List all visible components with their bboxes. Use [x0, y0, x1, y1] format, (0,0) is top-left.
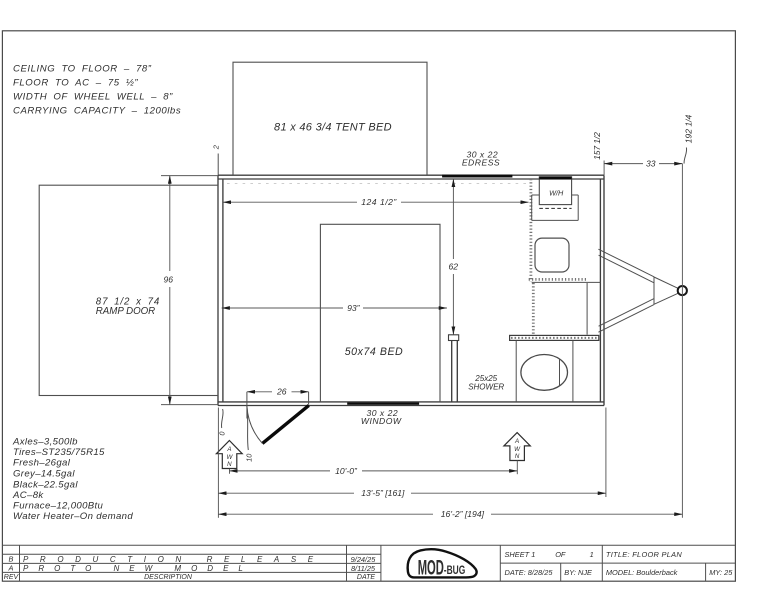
svg-text:93”: 93”	[347, 303, 361, 313]
svg-text:CEILING TO FLOOR – 78”: CEILING TO FLOOR – 78”	[13, 63, 152, 74]
svg-text:PRODUCTION RELEASE: PRODUCTION RELEASE	[23, 555, 325, 564]
svg-text:192 1/4: 192 1/4	[684, 114, 694, 143]
svg-text:2: 2	[212, 145, 221, 150]
svg-text:B: B	[9, 555, 14, 564]
svg-text:N: N	[227, 461, 232, 468]
svg-text:81 x 46 3/4 TENT BED: 81 x 46 3/4 TENT BED	[274, 122, 392, 134]
svg-text:W/H: W/H	[549, 188, 564, 197]
svg-text:MY: 25: MY: 25	[709, 568, 733, 577]
svg-text:RAMP DOOR: RAMP DOOR	[96, 306, 155, 317]
svg-text:WIDTH OF WHEEL WELL – 8”: WIDTH OF WHEEL WELL – 8”	[13, 92, 173, 103]
svg-text:TITLE: FLOOR PLAN: TITLE: FLOOR PLAN	[606, 550, 683, 559]
svg-text:OF: OF	[555, 550, 566, 559]
svg-text:REV: REV	[4, 574, 20, 581]
svg-text:Water Heater–On demand: Water Heater–On demand	[13, 511, 133, 522]
svg-text:N: N	[515, 453, 520, 460]
svg-text:A: A	[514, 438, 519, 445]
svg-text:1: 1	[590, 550, 594, 559]
svg-text:SHEET 1: SHEET 1	[505, 550, 536, 559]
svg-text:MODEL: Boulderback: MODEL: Boulderback	[606, 568, 678, 577]
svg-text:AC–8k: AC–8k	[12, 490, 44, 501]
svg-text:-BUG: -BUG	[444, 565, 466, 577]
svg-text:PROTO NEW MODEL: PROTO NEW MODEL	[23, 564, 253, 573]
svg-text:EDRESS: EDRESS	[462, 158, 500, 168]
svg-text:8/11/25: 8/11/25	[351, 564, 376, 573]
svg-text:DATE: 8/28/25: DATE: 8/28/25	[505, 568, 554, 577]
svg-text:157 1/2: 157 1/2	[592, 132, 602, 160]
svg-text:50x74 BED: 50x74 BED	[345, 346, 404, 358]
svg-text:10: 10	[244, 453, 253, 462]
svg-text:10'-0”: 10'-0”	[335, 466, 358, 476]
svg-text:Grey–14.5gal: Grey–14.5gal	[13, 468, 75, 479]
svg-text:Furnace–12,000Btu: Furnace–12,000Btu	[13, 500, 104, 511]
svg-text:BY: NJE: BY: NJE	[564, 568, 592, 577]
svg-text:33: 33	[646, 159, 656, 169]
svg-text:Tires–ST235/75R15: Tires–ST235/75R15	[13, 447, 105, 458]
svg-text:Fresh–26gal: Fresh–26gal	[13, 458, 71, 469]
svg-text:62: 62	[449, 262, 459, 272]
svg-text:WINDOW: WINDOW	[361, 416, 402, 426]
svg-text:Axles–3,500lb: Axles–3,500lb	[12, 437, 78, 448]
svg-text:SHOWER: SHOWER	[468, 382, 504, 391]
svg-text:FLOOR TO AC – 75 ½”: FLOOR TO AC – 75 ½”	[13, 77, 138, 88]
svg-text:9/24/25: 9/24/25	[351, 555, 377, 564]
svg-text:CARRYING CAPACITY – 1200lbs: CARRYING CAPACITY – 1200lbs	[13, 106, 181, 117]
svg-text:96: 96	[164, 274, 174, 284]
svg-text:124 1/2”: 124 1/2”	[361, 197, 397, 207]
svg-text:26: 26	[276, 387, 287, 397]
svg-text:DESCRIPTION: DESCRIPTION	[144, 574, 193, 581]
svg-text:16'-2” [194]: 16'-2” [194]	[441, 509, 485, 519]
svg-text:13'-5” [161]: 13'-5” [161]	[361, 488, 405, 498]
svg-text:A: A	[8, 564, 14, 573]
svg-text:MOD: MOD	[418, 557, 444, 580]
svg-text:Black–22.5gal: Black–22.5gal	[13, 479, 78, 490]
svg-text:A: A	[226, 446, 231, 453]
svg-text:DATE: DATE	[357, 574, 375, 581]
